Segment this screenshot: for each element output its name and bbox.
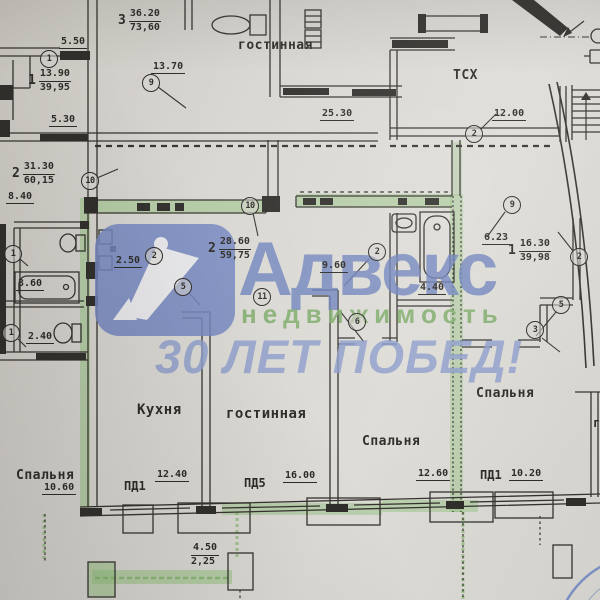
- plan-labels: гостинная ТСХ Кухня гостинная Спальня Сп…: [0, 0, 600, 600]
- mark-6: 6: [348, 313, 366, 331]
- room-label-bedroom-mid: Спальня: [362, 434, 420, 449]
- apartment-area-1-topleft: 1 13.9039,95: [28, 68, 71, 93]
- dim-2-40: 2.40: [26, 331, 54, 344]
- mark-2: 2: [465, 125, 483, 143]
- dim-5-30: 5.30: [49, 114, 77, 127]
- mark-1: 1: [40, 50, 58, 68]
- dim-9-60: 9.60: [320, 260, 348, 273]
- dim-6-23: 6.23: [482, 232, 510, 245]
- apartment-area-2-main: 2 28.6059,75: [208, 236, 251, 261]
- room-label-tsh: ТСХ: [453, 68, 478, 83]
- label-pd1-kitchen: ПД1: [124, 479, 146, 493]
- mark-2: 2: [145, 247, 163, 265]
- label-pd1-right: ПД1: [480, 468, 502, 482]
- dim-16-00: 16.00: [283, 470, 317, 483]
- mark-2: 2: [570, 248, 588, 266]
- dim-25-30: 25.30: [320, 108, 354, 121]
- label-edge-letter: г: [593, 416, 600, 430]
- apartment-area-3-top: 3 36.2073,60: [118, 8, 161, 33]
- dim-4-40: 4.40: [418, 282, 446, 295]
- room-label-bedroom-right: Спальня: [476, 386, 534, 401]
- mark-10: 10: [241, 197, 259, 215]
- dim-2-50: 2.50: [114, 255, 142, 268]
- mark-11: 11: [253, 288, 271, 306]
- apartment-area-1-right: 1 16.3039,98: [508, 238, 551, 263]
- room-label-bedroom-far-left: Спальня: [16, 468, 74, 483]
- room-label-kitchen: Кухня: [137, 402, 182, 418]
- label-pd5-living: ПД5: [244, 476, 266, 490]
- mark-9: 9: [503, 196, 521, 214]
- dim-5-50: 5.50: [59, 36, 87, 49]
- mark-5: 5: [174, 278, 192, 296]
- dim-10-60: 10.60: [42, 482, 76, 495]
- dim-4-50-over-2-25: 4.50 2,25: [191, 542, 219, 568]
- mark-5: 5: [552, 296, 570, 314]
- room-label-living-main: гостинная: [226, 406, 306, 422]
- dim-12-60: 12.60: [416, 468, 450, 481]
- dim-13-70: 13.70: [151, 61, 185, 74]
- mark-3: 3: [526, 321, 544, 339]
- dim-12-00: 12.00: [492, 108, 526, 121]
- mark-9: 9: [142, 74, 160, 92]
- dim-8-40: 8.40: [6, 191, 34, 204]
- apartment-area-2-left: 2 31.3060,15: [12, 161, 55, 186]
- mark-1: 1: [4, 245, 22, 263]
- mark-2: 2: [368, 243, 386, 261]
- dim-10-20: 10.20: [509, 468, 543, 481]
- mark-10: 10: [81, 172, 99, 190]
- room-label-living-top: гостинная: [238, 38, 313, 53]
- floorplan-scan: Адвекс недвижимость 30 ЛЕТ ПОБЕД! гостин…: [0, 0, 600, 600]
- dim-12-40: 12.40: [155, 469, 189, 482]
- dim-3-60: 3.60: [16, 278, 44, 291]
- mark-1: 1: [2, 324, 20, 342]
